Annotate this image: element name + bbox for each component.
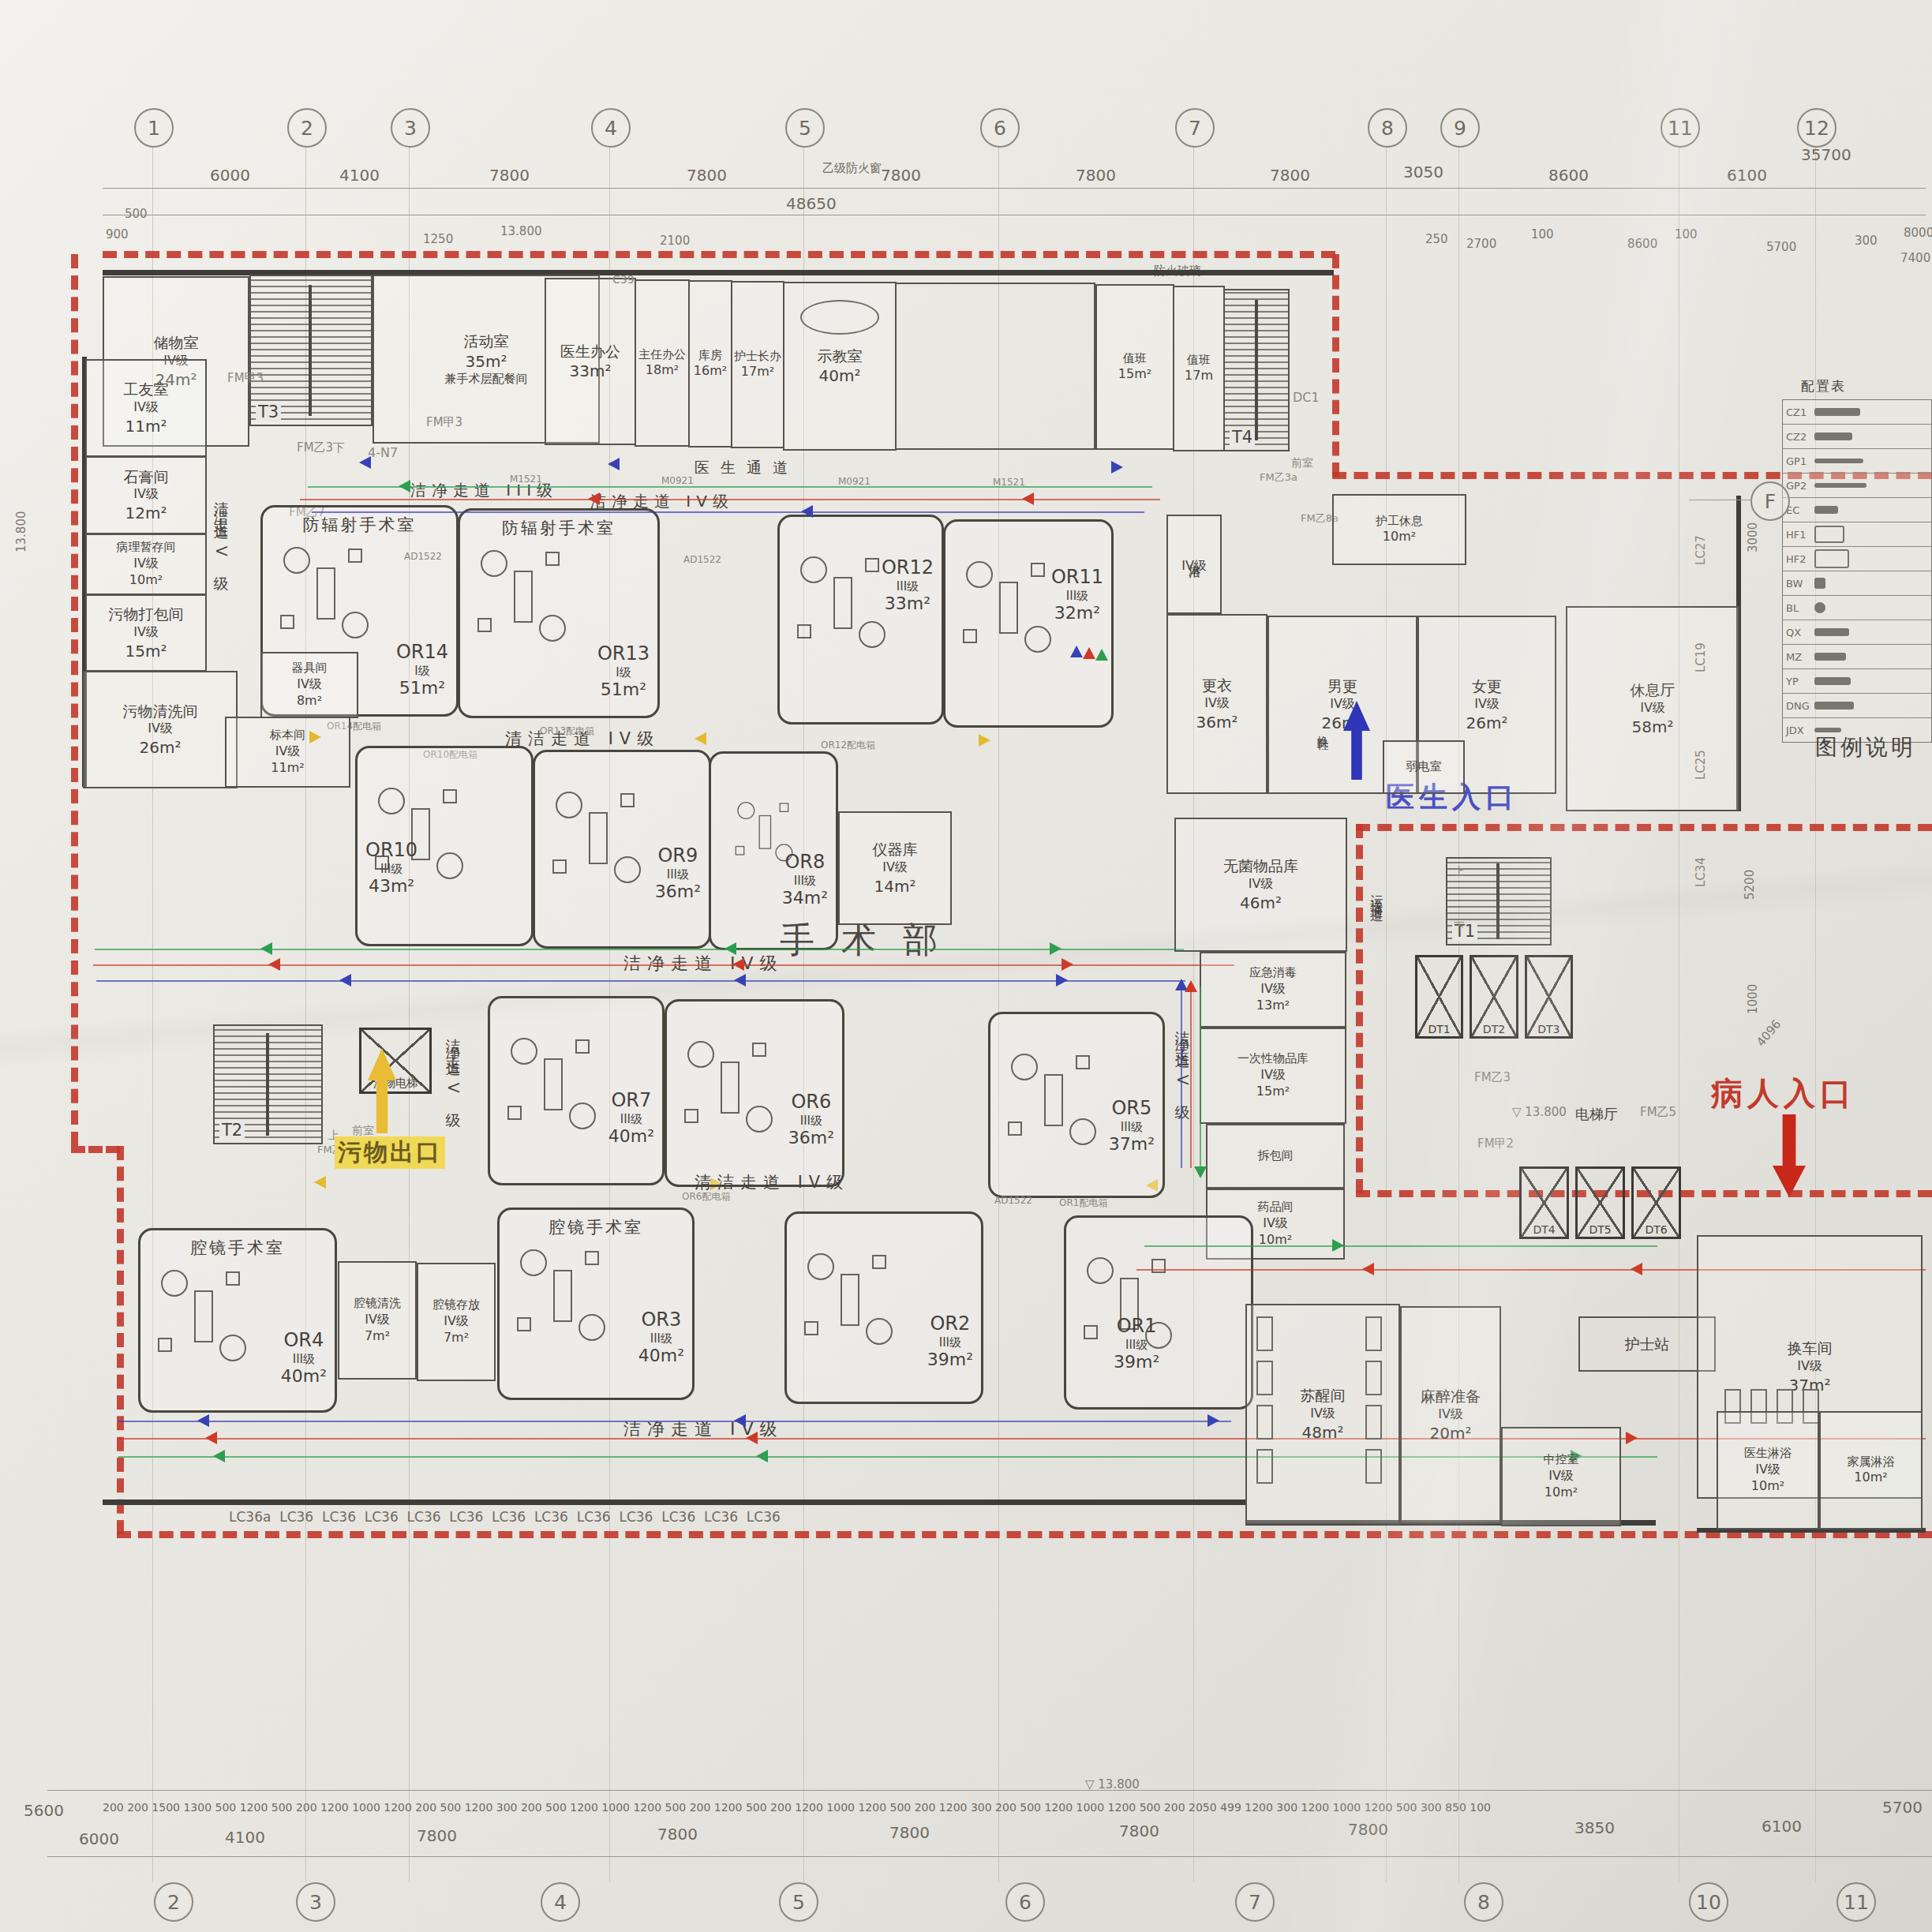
window-lc19: LC19 <box>1694 642 1708 672</box>
grid-bubble-bottom: 10 <box>1689 1882 1728 1922</box>
room-area: 17m <box>1185 368 1213 384</box>
or-title: 防辐射手术室 <box>502 517 616 539</box>
grid-bubble-bottom: 3 <box>296 1882 335 1922</box>
room-area: 15m² <box>125 641 167 661</box>
dim-sub: 7400 <box>1900 251 1930 265</box>
or-grade: III级 <box>655 867 701 882</box>
bubble-label: 3 <box>404 117 417 140</box>
room-name: 医生办公 <box>560 342 620 361</box>
room-lounge: 休息厅 IV级 58m² <box>1566 606 1739 811</box>
flow-arrow <box>359 456 371 469</box>
room-weak-power: 弱电室 <box>1383 740 1465 794</box>
dim-line <box>47 1790 1932 1791</box>
dim-bottom: 7800 <box>1348 1820 1388 1839</box>
or-code: OR6 <box>788 1091 834 1114</box>
flow-arrow <box>1207 1414 1219 1427</box>
room-pathology: 病理暂存间 IV级 10m² <box>85 534 207 595</box>
room-area: 17m² <box>741 364 774 380</box>
level-value: 13.800 <box>1525 1105 1567 1119</box>
flow-arrow <box>801 505 813 518</box>
legend-symbol <box>1814 602 1825 613</box>
flow-arrow <box>746 1432 758 1444</box>
flow-blue <box>118 1421 1231 1422</box>
room-instrument: 仪器库 IV级 14m² <box>838 811 952 925</box>
flow-red <box>118 1438 1926 1440</box>
room-name: 护士长办 <box>734 349 781 365</box>
bed-icon <box>1256 1405 1273 1440</box>
grid-bubble-top: 5 <box>785 108 825 148</box>
db-or13: OR13配电箱 <box>540 724 594 738</box>
grid-bubble-bottom: 7 <box>1235 1882 1275 1922</box>
room-area: 26m² <box>1466 713 1508 733</box>
room-name: 药品间 <box>1258 1200 1294 1215</box>
room-area: 12m² <box>125 503 167 523</box>
room-name: 换车间 <box>1788 1339 1833 1358</box>
elevator-label: DT1 <box>1417 1023 1461 1035</box>
legend-code: GP2 <box>1783 480 1814 492</box>
patient-entrance-arrow <box>1773 1114 1806 1197</box>
flow-arrow <box>1194 1166 1207 1178</box>
or-area: 40m² <box>608 1126 654 1147</box>
room-name: 库房 <box>698 348 722 364</box>
bottom-small-dims: 200 200 1500 1300 500 1200 500 200 1200 … <box>103 1801 1768 1814</box>
dim-top: 6000 <box>210 166 250 185</box>
room-name: 主任办公 <box>638 347 686 363</box>
bubble-label: 7 <box>1249 1891 1261 1914</box>
elevator-dt5: DT5 <box>1575 1166 1625 1239</box>
room-area: 16m² <box>694 363 727 380</box>
room-name: 休息厅 <box>1631 680 1676 700</box>
room-grade: IV级 <box>133 624 159 641</box>
or-code: OR4 <box>281 1329 327 1352</box>
flow-green-v <box>1200 987 1201 1168</box>
room-utensil: 器具间 IV级 8m² <box>260 652 358 718</box>
flow-arrow-yellow <box>695 732 706 745</box>
room-grade: IV级 <box>365 1312 390 1328</box>
room-name: 腔镜存放 <box>432 1297 480 1313</box>
dim-top: 7800 <box>1270 166 1310 185</box>
room-area: 10m² <box>1544 1485 1578 1501</box>
boundary-left-lower <box>117 1146 124 1534</box>
flow-blue-v <box>1181 987 1182 1168</box>
room-grade: IV级 <box>1330 696 1355 713</box>
dim-sub: 2700 <box>1466 237 1496 251</box>
grid-bubble-bottom: 8 <box>1464 1882 1503 1922</box>
or-grade: III级 <box>608 1112 654 1126</box>
service-elevators: DT1 DT2 DT3 <box>1415 955 1573 1039</box>
bed-icon <box>1256 1361 1273 1395</box>
dim-top: 7800 <box>687 166 727 185</box>
or-area: 37m² <box>1109 1134 1155 1155</box>
or-2: OR2III级39m² <box>784 1211 983 1404</box>
flow-arrow <box>268 958 280 971</box>
room-grade: IV级 <box>133 399 159 416</box>
legend-code: JDX <box>1783 724 1814 736</box>
label-shoe-change: 换鞋 <box>1315 726 1330 731</box>
or-equipment-icon <box>153 1262 256 1372</box>
patient-elevators: DT4 DT5 DT6 <box>1519 1166 1681 1239</box>
room-name: 弱电室 <box>1406 759 1442 775</box>
boundary-left-step <box>71 1146 120 1153</box>
room-grade: IV级 <box>297 676 322 693</box>
or-code: OR1 <box>1114 1315 1159 1338</box>
recovery-beds <box>1256 1316 1275 1506</box>
legend-symbol <box>1814 549 1849 568</box>
bubble-label: 4 <box>605 117 617 140</box>
room-area: 15m² <box>1118 366 1151 383</box>
room-shower: 淋浴 IV级 <box>1166 515 1222 614</box>
bed-icon <box>1256 1449 1273 1484</box>
or-code: OR12 <box>882 556 934 579</box>
door-dc1: DC1 <box>1293 390 1320 405</box>
or-equipment-icon <box>799 1245 902 1356</box>
room-area: 10m² <box>1383 529 1416 545</box>
room-name: 男更 <box>1327 676 1357 696</box>
legend-symbol <box>1814 526 1844 543</box>
door-fmy3a: FM乙3a <box>1260 470 1297 485</box>
room-area: 10m² <box>129 572 163 589</box>
elevator-dt2: DT2 <box>1470 955 1518 1039</box>
dim-bottom: 3850 <box>1574 1818 1615 1837</box>
or-grade: III级 <box>782 874 828 888</box>
window-lc25: LC25 <box>1694 750 1708 780</box>
dim-bottom: 7800 <box>417 1826 457 1845</box>
room-grade: IV级 <box>1181 558 1207 575</box>
or-code: OR11 <box>1051 566 1103 589</box>
bubble-label: 8 <box>1381 117 1394 140</box>
or-grade: I级 <box>396 664 448 678</box>
hall-level: ▽ 13.800 <box>1512 1105 1567 1119</box>
bubble-label: 3 <box>309 1891 322 1914</box>
room-wc-cluster <box>895 283 1095 450</box>
room-specimen: 标本间 IV级 11m² <box>225 717 350 788</box>
dim-overall: 48650 <box>786 194 837 213</box>
or-grade: III级 <box>1051 589 1103 603</box>
flow-arrow <box>734 974 746 987</box>
bed-icon <box>1256 1316 1273 1351</box>
or-equipment-icon <box>548 784 650 894</box>
legend-symbol <box>1814 459 1863 463</box>
door-fmj3: FM甲3 <box>426 415 462 430</box>
dim-sub: 500 <box>125 207 148 221</box>
room-grade: IV级 <box>1755 1462 1780 1478</box>
bubble-label: 4 <box>554 1891 567 1914</box>
flow-arrow <box>260 942 272 955</box>
legend-symbol <box>1814 578 1825 589</box>
dim-sub: 8600 <box>1627 237 1657 251</box>
room-name: 应急消毒 <box>1249 965 1297 981</box>
or-title: 防辐射手术室 <box>303 514 417 536</box>
or-grade: III级 <box>365 862 417 876</box>
room-grade: IV级 <box>1249 876 1274 893</box>
legend-row: MZ <box>1783 644 1931 668</box>
elevator-dt3: DT3 <box>1525 955 1573 1039</box>
flow-arrow <box>724 942 736 955</box>
ad-code: AD1522 <box>683 554 721 565</box>
room-worker: 工友室 IV级 11m² <box>85 359 207 457</box>
room-area: 58m² <box>1632 717 1674 737</box>
leader-line <box>1689 500 1752 500</box>
or-equipment-icon <box>275 539 378 650</box>
room-grade: IV级 <box>1260 981 1286 998</box>
or-grade: III级 <box>882 579 934 593</box>
elevator-label: DT5 <box>1578 1223 1623 1236</box>
legend-code: GP1 <box>1783 455 1814 467</box>
flow-arrow <box>1061 958 1073 971</box>
room-name: 污物打包间 <box>109 605 184 624</box>
or-equipment-icon <box>503 1030 605 1140</box>
legend-code: DNG <box>1783 700 1814 712</box>
legend-code: HF2 <box>1783 553 1814 565</box>
bed-icon <box>1365 1449 1382 1484</box>
room-name: 器具间 <box>292 661 328 676</box>
room-storeroom: 库房 16m² <box>688 280 732 447</box>
bubble-label: 8 <box>1477 1891 1490 1914</box>
legend-row: BW <box>1783 571 1931 595</box>
legend-code: YP <box>1783 676 1814 687</box>
legend-symbol <box>1814 677 1851 685</box>
or-1: OR1III级39m² <box>1064 1215 1253 1410</box>
or-equipment-icon <box>680 1033 782 1144</box>
room-name: 一次性物品库 <box>1237 1051 1309 1067</box>
or-title: 腔镜手术室 <box>549 1216 643 1238</box>
dept-label: 手术部 <box>780 917 964 964</box>
bubble-label: 6 <box>994 117 1006 140</box>
db-or6: OR6配电箱 <box>682 1190 730 1204</box>
boundary-mid <box>1356 824 1932 831</box>
elevator-label: DT6 <box>1634 1223 1679 1236</box>
legend-row: QX <box>1783 620 1931 644</box>
room-area: 15m² <box>1256 1084 1290 1100</box>
room-name: 家属淋浴 <box>1848 1455 1895 1470</box>
room-name: 污物清洗间 <box>123 702 198 721</box>
or-grade: I级 <box>597 665 650 680</box>
stair-label: T2 <box>219 1121 245 1140</box>
room-name: 值班 <box>1123 351 1147 367</box>
bubble-label: 5 <box>792 1891 805 1914</box>
elevator-dt1: DT1 <box>1415 955 1463 1039</box>
room-nurse-station: 护士站 <box>1578 1316 1716 1372</box>
dim-right: 3000 <box>1746 522 1760 552</box>
window-lc34: LC34 <box>1694 857 1708 887</box>
grid-line <box>1679 146 1679 1882</box>
dim-sub: 2100 <box>660 234 690 248</box>
legend-caption: 图例说明 <box>1815 732 1916 762</box>
room-name: 护士站 <box>1625 1335 1670 1354</box>
bubble-label: 7 <box>1189 117 1201 140</box>
dim-bottom: 6000 <box>79 1829 119 1848</box>
grid-bubble-top: 4 <box>591 108 631 148</box>
grid-bubble-top: 3 <box>391 108 430 148</box>
grid-bubble-top: 9 <box>1440 108 1480 148</box>
dim-top: 8600 <box>1548 166 1589 185</box>
flow-red-v <box>1190 987 1192 1168</box>
or-area: 36m² <box>655 882 701 902</box>
or-grade: III级 <box>1109 1120 1155 1134</box>
door-fmy3x: FM乙3下 <box>297 440 345 455</box>
flow-arrow <box>339 974 351 987</box>
or-equipment-icon <box>792 549 895 659</box>
room-sterile: 无菌物品库 IV级 46m² <box>1174 818 1347 952</box>
room-waste-pack: 污物打包间 IV级 15m² <box>85 594 207 672</box>
flow-arrow <box>732 958 744 971</box>
bubble-label: 9 <box>1454 117 1466 140</box>
flow-arrow <box>1626 1432 1638 1444</box>
legend-row: CZ1 <box>1783 400 1931 424</box>
legend-row: CZ2 <box>1783 424 1931 448</box>
legend-row: BL <box>1783 595 1931 620</box>
room-area: 40m² <box>819 365 861 386</box>
corridor-cleaning-left: 清洁走道 IV级 <box>212 489 232 695</box>
corridor-transport: 运送通道 <box>1368 884 1387 1042</box>
room-grade: IV级 <box>1204 695 1230 712</box>
elevator-dt6: DT6 <box>1631 1166 1681 1239</box>
legend-code: QX <box>1783 627 1814 638</box>
legend-table: CZ1 CZ2 GP1 GP2 EC HF1 HF2 BW BL QX MZ Y… <box>1782 399 1932 743</box>
window-lc27: LC27 <box>1694 535 1708 565</box>
bed-icon <box>1365 1316 1382 1351</box>
flow-arrow <box>588 492 600 505</box>
dim-bottom: 7800 <box>889 1823 930 1842</box>
room-family-shower: 家属淋浴 10m² <box>1819 1411 1923 1529</box>
flow-arrow <box>1056 974 1068 987</box>
room-name: 无菌物品库 <box>1223 856 1298 876</box>
dim-top: 7800 <box>881 166 921 185</box>
or-9: OR9III级36m² <box>533 750 711 949</box>
stair-t3: T3 <box>249 275 373 426</box>
flow-arrow <box>197 1414 209 1427</box>
or-7: OR7III级40m² <box>488 996 665 1185</box>
or-area: 51m² <box>396 678 448 698</box>
legend-symbol <box>1814 483 1866 488</box>
legend-symbol <box>1814 432 1852 440</box>
room-name: 仪器库 <box>873 840 918 859</box>
flow-arrow-yellow <box>979 734 990 747</box>
room-endo-store: 腔镜存放 IV级 7m² <box>417 1263 496 1381</box>
flow-arrow <box>1185 980 1197 992</box>
dim-right: 1000 <box>1746 984 1760 1014</box>
room-grade: IV级 <box>1438 1406 1463 1423</box>
dim-bottom: 7800 <box>657 1825 698 1844</box>
stair-down: 下 <box>1454 920 1465 934</box>
room-name: 中控室 <box>1544 1452 1579 1468</box>
stair-label: T3 <box>256 403 281 421</box>
room-area: 11m² <box>271 760 304 777</box>
dim-sub: 5700 <box>1766 240 1796 254</box>
room-area: 10m² <box>1854 1470 1887 1486</box>
room-grade: IV级 <box>133 486 159 503</box>
room-name: 腔镜清洗 <box>354 1296 401 1312</box>
flow-green <box>95 949 1184 950</box>
flow-arrow-yellow <box>314 1176 326 1189</box>
flow-arrow <box>213 1450 225 1462</box>
dim-top: 7800 <box>489 166 530 185</box>
room-doc-office: 医生办公 33m² <box>545 278 636 445</box>
bubble-label: F <box>1765 490 1776 513</box>
grid-bubble-top: 1 <box>134 108 174 148</box>
recovery-beds <box>1365 1316 1384 1506</box>
door-fmy3: FM乙3 <box>1474 1070 1511 1085</box>
or-code: OR10 <box>365 839 417 862</box>
bubble-label: 10 <box>1696 1891 1721 1914</box>
bubble-label: 6 <box>1019 1891 1032 1914</box>
corridor-clean3: 洁净走道 III级 <box>410 480 558 501</box>
dim-bottom: 4100 <box>225 1828 265 1847</box>
legend-code: CZ1 <box>1783 406 1814 418</box>
room-area: 11m² <box>125 416 167 436</box>
grid-bubble-bottom: 6 <box>1005 1882 1045 1922</box>
room-duty15: 值班 15m² <box>1095 284 1174 450</box>
flow-green <box>308 486 1152 488</box>
corridor-clean4-vertical-left: 洁净走道 IV级 <box>444 1026 464 1176</box>
or-3: 腔镜手术室 OR3III级40m² <box>497 1207 695 1400</box>
or-area: 36m² <box>788 1128 834 1148</box>
room-area: 18m² <box>646 362 679 379</box>
legend-symbol <box>1814 628 1849 636</box>
bed-icon <box>1365 1361 1382 1395</box>
or-10: OR10III级43m² <box>355 746 534 946</box>
elevator-label: DT4 <box>1522 1223 1567 1236</box>
window-c39: C39 <box>612 273 635 286</box>
grid-bubble-top: 8 <box>1368 108 1407 148</box>
or-area: 40m² <box>638 1346 684 1366</box>
or-4: 腔镜手术室 OR4III级40m² <box>138 1228 337 1413</box>
conference-table <box>800 300 879 335</box>
exit-waste-label: 污物出口 <box>335 1136 445 1169</box>
flow-arrow <box>1050 942 1061 955</box>
or-equipment-icon <box>958 553 1061 664</box>
or-area: 39m² <box>927 1350 973 1370</box>
room-name: 麻醉准备 <box>1421 1387 1481 1406</box>
stair-t4: T4 <box>1223 289 1290 451</box>
waste-elevator: 污物电梯 <box>359 1028 432 1094</box>
room-plaster: 石膏间 IV级 12m² <box>85 456 207 534</box>
label-anteroom: 前室 <box>1291 456 1313 470</box>
legend-row: YP <box>1783 668 1931 693</box>
room-name: 护工休息 <box>1376 514 1423 530</box>
room-area: 46m² <box>1240 893 1282 913</box>
level-value: 13.800 <box>1098 1777 1140 1792</box>
room-grade: IV级 <box>1474 696 1500 713</box>
dim-bottom-right: 5700 <box>1882 1798 1923 1817</box>
dim-right: 5200 <box>1743 870 1757 900</box>
dim-top: 6100 <box>1727 166 1767 185</box>
legend-symbol <box>1814 653 1846 661</box>
bubble-label: 2 <box>167 1891 180 1914</box>
room-area: 7m² <box>365 1328 390 1345</box>
dim-line <box>103 188 1926 189</box>
elevator-waste: 污物电梯 <box>359 1028 432 1094</box>
or-code: OR13 <box>597 642 650 665</box>
dim-top: 7800 <box>1076 166 1116 185</box>
door-code: M0921 <box>838 476 871 487</box>
room-area: 8m² <box>297 693 322 710</box>
bottom-level: ▽ 13.800 <box>1085 1777 1140 1792</box>
room-name: 石膏间 <box>124 467 169 487</box>
or-area: 34m² <box>782 888 828 908</box>
flow-green-ext <box>1144 1245 1657 1247</box>
flow-arrow <box>1070 646 1083 657</box>
room-name: 标本间 <box>270 728 305 743</box>
label-n7: 4-N7 <box>368 445 398 460</box>
room-grade: IV级 <box>1640 700 1665 717</box>
room-grade: IV级 <box>275 743 301 760</box>
room-grade: IV级 <box>133 556 159 572</box>
boundary-right-upper <box>1332 254 1339 477</box>
or-equipment-icon <box>512 1241 615 1352</box>
dim-bottom-left: 5600 <box>24 1801 64 1820</box>
legend-row: HF1 <box>1783 522 1931 546</box>
